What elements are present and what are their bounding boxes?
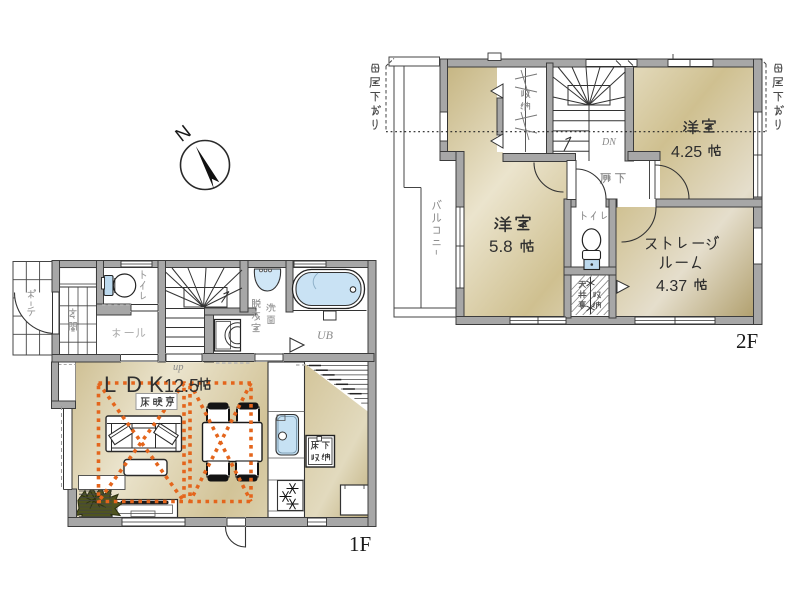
svg-text:4.37: 4.37	[656, 278, 687, 295]
svg-text:up: up	[173, 362, 184, 373]
svg-text:DN: DN	[601, 137, 617, 148]
svg-text:1F: 1F	[349, 532, 371, 556]
svg-text:2F: 2F	[736, 329, 758, 353]
svg-text:L: L	[104, 372, 116, 397]
svg-text:UB: UB	[317, 328, 334, 342]
svg-text:5.8: 5.8	[489, 237, 513, 256]
svg-text:4.25: 4.25	[671, 144, 702, 161]
